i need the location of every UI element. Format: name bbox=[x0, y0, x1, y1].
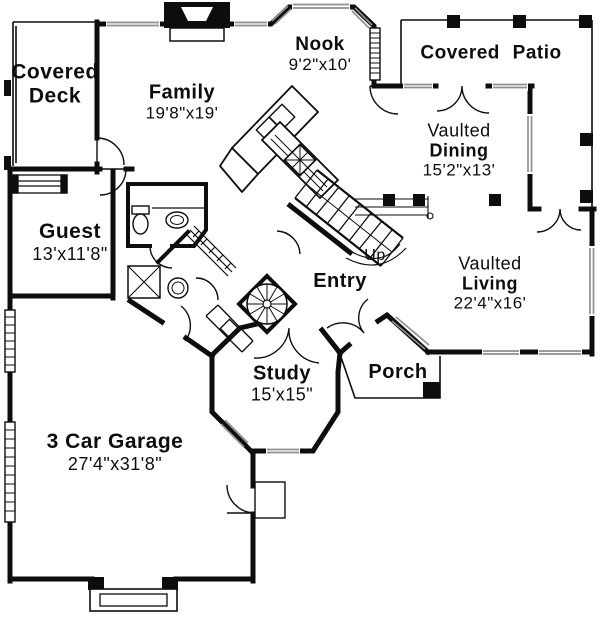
dining-name: Dining bbox=[423, 140, 496, 160]
nook-label: Nook 9'2"x10' bbox=[289, 34, 352, 74]
covered-patio-name: Covered Patio bbox=[420, 42, 561, 63]
kitchen-counter bbox=[262, 122, 338, 198]
guest-name: Guest bbox=[32, 220, 107, 244]
study-name: Study bbox=[251, 363, 313, 385]
linen-cabinet bbox=[128, 266, 160, 298]
dining-dims: 15'2"x13' bbox=[423, 161, 496, 180]
living-label: Vaulted Living 22'4"x16' bbox=[454, 253, 527, 312]
garage-side-door-landing bbox=[255, 482, 285, 518]
covered-deck-name-line2: Deck bbox=[11, 84, 99, 108]
living-qualifier: Vaulted bbox=[454, 253, 527, 273]
spiral-stair bbox=[247, 284, 287, 324]
floor-plan: Covered Deck Family 19'8"x19' Nook 9'2"x… bbox=[0, 0, 600, 617]
study-label: Study 15'x15" bbox=[251, 363, 313, 406]
study-dims: 15'x15" bbox=[251, 385, 313, 405]
living-dims: 22'4"x16' bbox=[454, 294, 527, 313]
garage-label: 3 Car Garage 27'4"x31'8" bbox=[47, 430, 184, 474]
fireplace bbox=[164, 2, 230, 41]
guest-label: Guest 13'x11'8" bbox=[32, 220, 107, 264]
covered-patio-label: Covered Patio bbox=[420, 42, 561, 63]
up-label: Up bbox=[364, 247, 385, 265]
living-name: Living bbox=[454, 273, 527, 293]
entry-name: Entry bbox=[313, 270, 367, 292]
porch-label: Porch bbox=[368, 361, 427, 383]
nook-name: Nook bbox=[289, 34, 352, 55]
guest-bay-window bbox=[12, 175, 67, 193]
family-dims: 19'8"x19' bbox=[146, 104, 219, 123]
garage-name: 3 Car Garage bbox=[47, 430, 184, 454]
dining-label: Vaulted Dining 15'2"x13' bbox=[423, 120, 496, 179]
guest-dims: 13'x11'8" bbox=[32, 244, 107, 264]
family-label: Family 19'8"x19' bbox=[146, 81, 219, 122]
family-name: Family bbox=[146, 81, 219, 103]
stair-direction: Up bbox=[364, 247, 385, 265]
garage-dims: 27'4"x31'8" bbox=[47, 454, 184, 474]
toilet-tank bbox=[132, 206, 149, 214]
covered-deck-label: Covered Deck bbox=[11, 60, 99, 107]
nook-dims: 9'2"x10' bbox=[289, 55, 352, 74]
closet-bifold-doors bbox=[186, 226, 236, 276]
porch-name: Porch bbox=[368, 361, 427, 383]
garage-door bbox=[88, 577, 178, 611]
dining-qualifier: Vaulted bbox=[423, 120, 496, 140]
toilet-bowl bbox=[133, 214, 148, 234]
entry-label: Entry bbox=[313, 270, 367, 292]
covered-deck-name-line1: Covered bbox=[11, 60, 99, 84]
